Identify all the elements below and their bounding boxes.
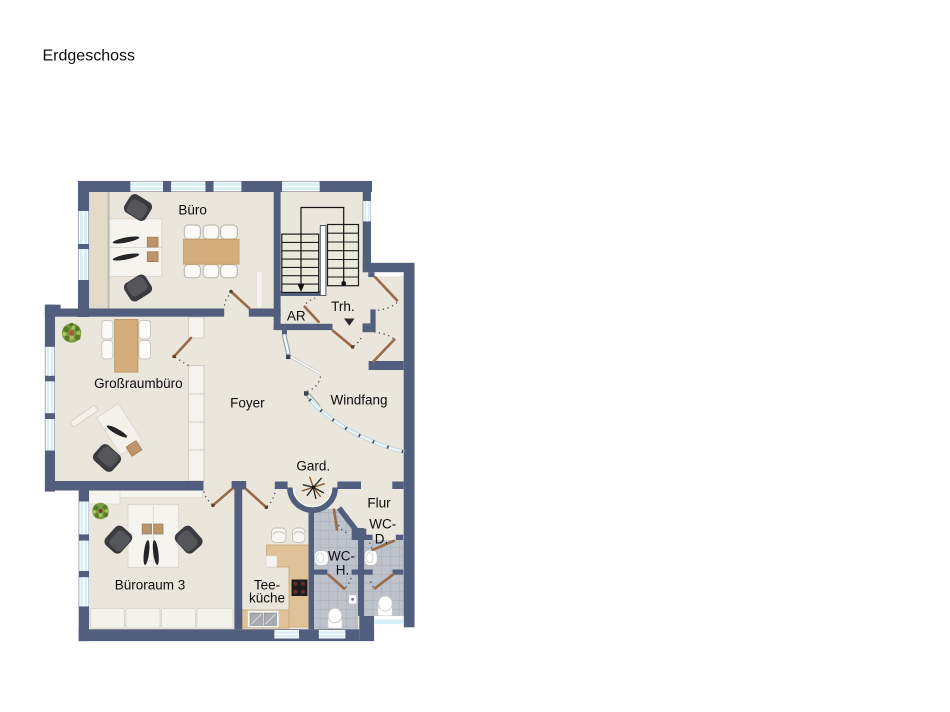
svg-text:küche: küche <box>249 591 285 606</box>
svg-text:Büro: Büro <box>178 203 207 218</box>
svg-text:D.: D. <box>375 532 389 547</box>
svg-text:AR: AR <box>287 308 306 323</box>
svg-text:Büroraum 3: Büroraum 3 <box>115 578 186 593</box>
svg-text:H.: H. <box>336 563 350 578</box>
svg-text:WC-: WC- <box>328 549 355 564</box>
svg-text:Trh.: Trh. <box>331 299 355 314</box>
svg-text:Flur: Flur <box>367 496 391 511</box>
svg-text:Erdgeschoss: Erdgeschoss <box>43 48 136 65</box>
svg-text:WC-: WC- <box>369 517 396 532</box>
svg-text:Gard.: Gard. <box>296 459 330 474</box>
svg-text:Großraumbüro: Großraumbüro <box>94 376 183 391</box>
svg-text:Foyer: Foyer <box>230 396 265 411</box>
svg-text:Windfang: Windfang <box>330 393 387 408</box>
